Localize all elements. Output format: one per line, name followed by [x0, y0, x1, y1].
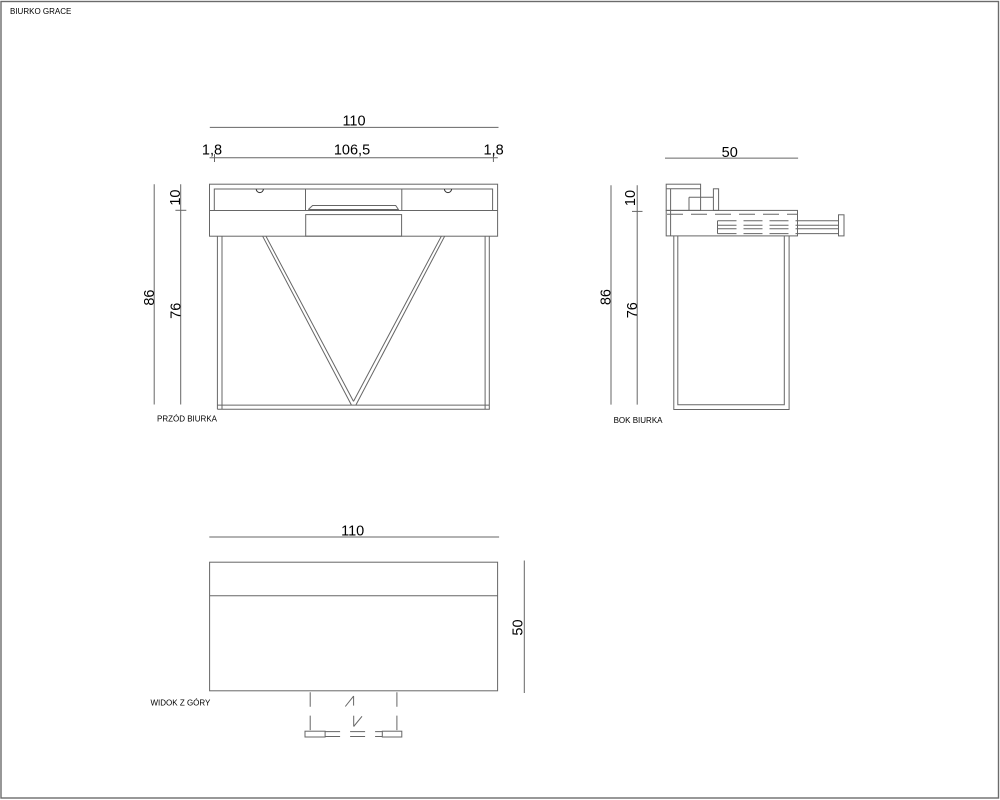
svg-text:110: 110 [341, 523, 364, 539]
svg-text:10: 10 [168, 190, 184, 206]
svg-text:1,8: 1,8 [484, 143, 504, 159]
svg-text:1,8: 1,8 [202, 143, 222, 159]
svg-text:50: 50 [722, 145, 738, 161]
svg-text:50: 50 [511, 619, 527, 635]
svg-text:WIDOK Z GÓRY: WIDOK Z GÓRY [151, 699, 212, 708]
svg-text:86: 86 [142, 290, 158, 306]
svg-text:BOK BIURKA: BOK BIURKA [614, 416, 664, 425]
svg-text:76: 76 [169, 303, 185, 319]
svg-text:BIURKO GRACE: BIURKO GRACE [10, 7, 71, 16]
svg-text:86: 86 [598, 289, 614, 305]
svg-text:10: 10 [623, 190, 639, 206]
svg-text:106,5: 106,5 [334, 143, 370, 159]
svg-text:76: 76 [625, 302, 641, 318]
svg-text:110: 110 [342, 114, 365, 130]
svg-text:PRZÓD BIURKA: PRZÓD BIURKA [157, 415, 218, 424]
